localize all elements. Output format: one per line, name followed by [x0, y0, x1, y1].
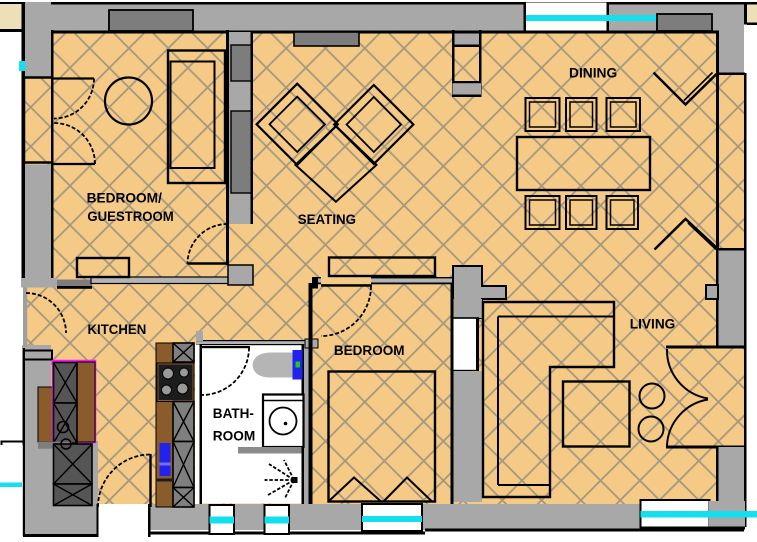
svg-text:BEDROOM/: BEDROOM/ — [87, 189, 162, 205]
svg-text:LIVING: LIVING — [630, 316, 676, 332]
svg-text:ROOM: ROOM — [213, 428, 256, 444]
svg-text:KITCHEN: KITCHEN — [88, 321, 147, 337]
svg-text:SEATING: SEATING — [298, 211, 356, 227]
svg-text:GUESTROOM: GUESTROOM — [87, 208, 173, 224]
svg-text:BATH-: BATH- — [213, 405, 254, 421]
svg-text:BEDROOM: BEDROOM — [334, 342, 405, 358]
svg-text:DINING: DINING — [569, 65, 617, 81]
